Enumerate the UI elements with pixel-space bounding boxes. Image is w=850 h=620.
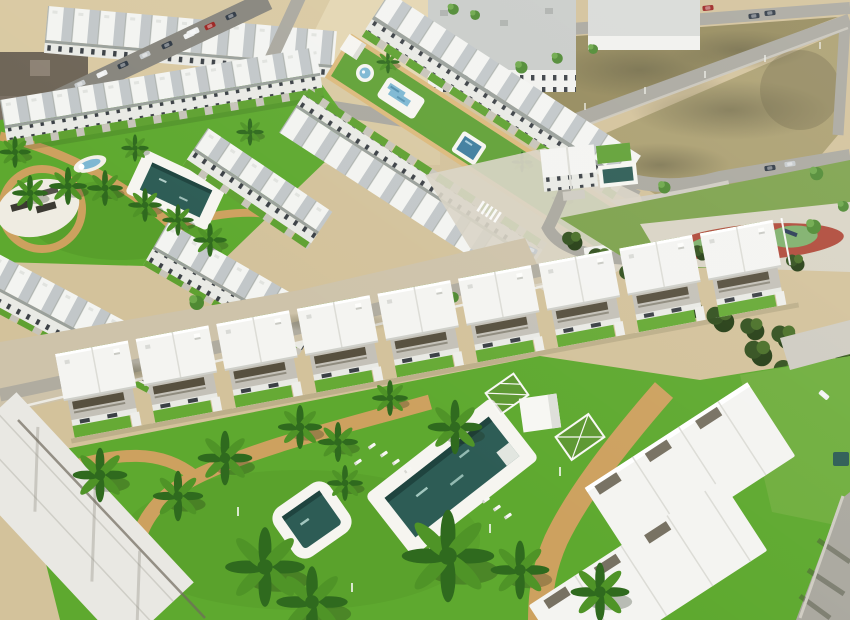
sunlight-overlay <box>0 0 850 620</box>
aerial-render <box>0 0 850 620</box>
scene-canvas <box>0 0 850 620</box>
